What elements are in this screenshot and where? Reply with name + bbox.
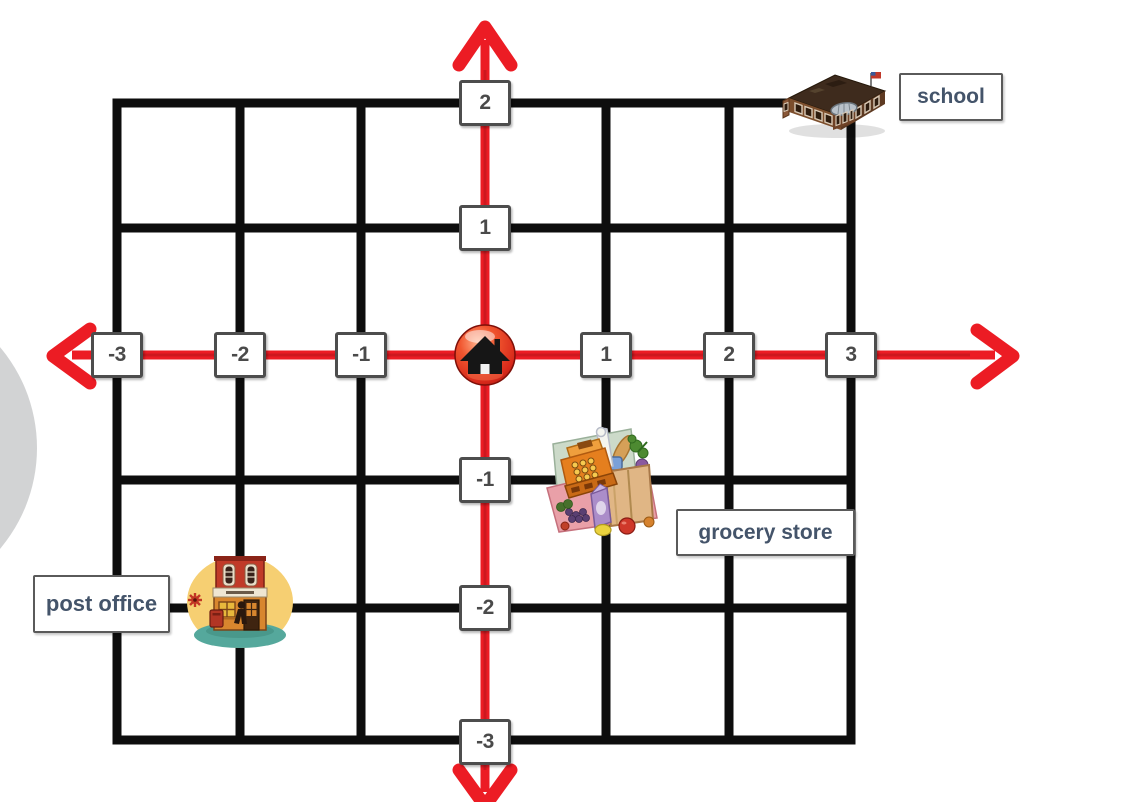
grocery-store-label: grocery store — [676, 509, 855, 556]
x-tick-minus-2: -2 — [214, 332, 266, 378]
x-tick-minus-3: -3 — [91, 332, 143, 378]
x-tick-minus-1: -1 — [335, 332, 387, 378]
school-building-icon — [781, 68, 893, 140]
flower-icon — [188, 593, 202, 607]
y-tick-1: 1 — [459, 205, 511, 251]
axes-lines — [72, 40, 995, 792]
post-office-label: post office — [33, 575, 170, 633]
y-tick-minus-2: -2 — [459, 585, 511, 631]
coordinate-grid-map: -3 -2 -1 1 2 3 2 1 -1 -2 -3 school groce… — [0, 0, 1124, 802]
x-tick-2: 2 — [703, 332, 755, 378]
school-label: school — [899, 73, 1003, 121]
x-tick-3: 3 — [825, 332, 877, 378]
x-tick-1: 1 — [580, 332, 632, 378]
y-tick-minus-3: -3 — [459, 719, 511, 765]
axes-core-shade — [100, 70, 970, 770]
y-tick-minus-1: -1 — [459, 457, 511, 503]
grocery-store-icon — [543, 420, 663, 538]
y-tick-2: 2 — [459, 80, 511, 126]
post-office-building-icon — [184, 548, 297, 652]
home-icon — [453, 323, 517, 387]
